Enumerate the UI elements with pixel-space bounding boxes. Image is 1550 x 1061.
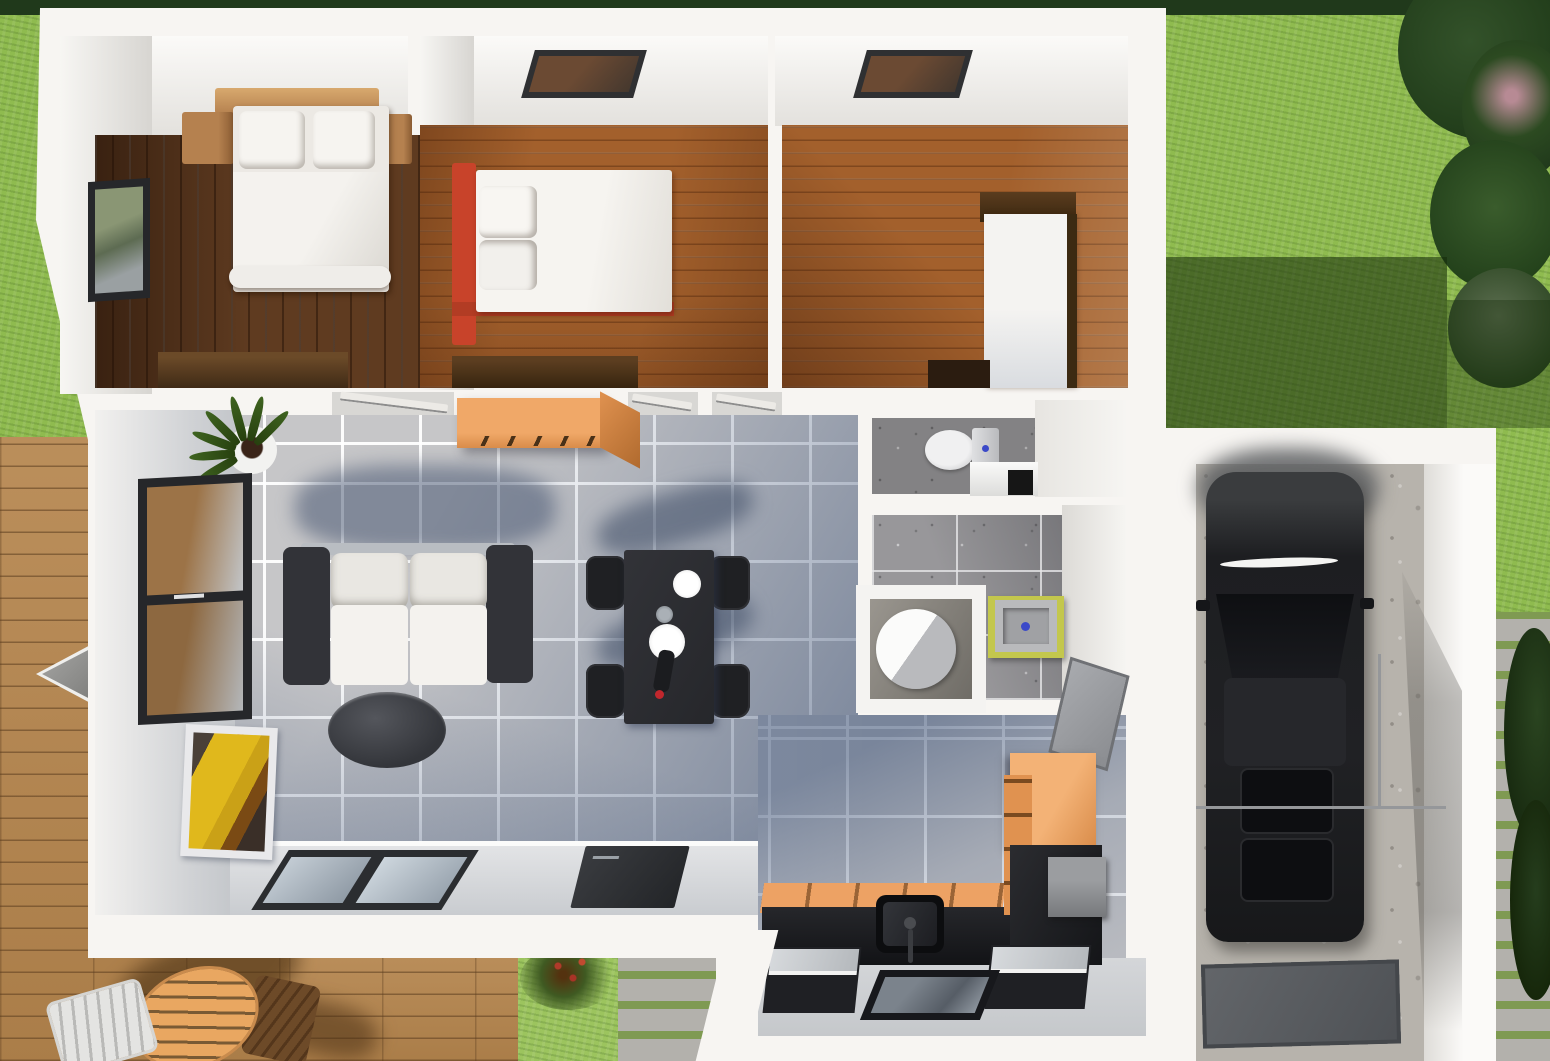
island-glass-top [990,947,1089,973]
bed-frame-red [452,163,476,345]
faucet-icon [904,917,916,929]
kitchen-cabinets [760,883,1006,913]
bed [476,170,672,312]
parasol-icon [42,648,92,700]
tall-cabinet [1010,753,1096,848]
kitchen-walkway [758,958,1146,1036]
car-front-blur [1198,448,1378,528]
faucet-icon [908,929,913,963]
duvet-roll [229,266,391,288]
room-living [95,410,858,915]
hatch-glass [871,977,990,1013]
washbasin-top [995,600,1057,652]
sofa-back-cushion [410,553,487,609]
wall-face [420,36,768,126]
tree-shadow [1447,300,1550,428]
sideboard-slats [463,436,597,446]
building-shadow [1166,257,1447,428]
pillow [313,111,375,169]
island-glass-top [769,949,860,975]
railing [1378,654,1381,808]
shower-round [876,609,956,689]
toilet [925,430,975,470]
dresser [158,352,348,388]
flower-dots [540,950,600,990]
shower-floor [870,599,972,699]
sink-basin [883,902,937,946]
pillow [239,111,305,169]
patio-chair-dark [240,974,321,1061]
tree-icon [1462,40,1550,180]
door-glass [263,857,372,903]
sideboard-side [600,391,640,468]
furniture-shadow [103,905,311,1054]
washbasin [988,596,1064,658]
door-glass [356,857,468,903]
wc-cabinet [970,462,1038,496]
wood-deck [289,950,518,1061]
island-unit [985,945,1092,1009]
sofa [283,543,533,685]
picture-frame [180,724,278,860]
door-leaf [340,391,448,413]
sofa-shadow [295,465,555,551]
door-leaf [632,393,693,411]
bedroom3-floor [782,125,1128,388]
island-unit [763,947,862,1013]
wall-shadow [1402,464,1462,1061]
bed [233,106,389,292]
garage-floor [1196,464,1424,1061]
floorplan-render [0,0,1550,1061]
room-kitchen [758,715,1146,1036]
car-roofline-highlight [1220,556,1338,569]
dresser [452,356,638,388]
door-handle-icon [592,856,619,859]
drain-icon [1021,622,1030,631]
kitchen-floor-shadow [758,715,1126,960]
patio-table [121,951,272,1061]
window [138,473,252,725]
wall-wedge [696,930,779,1061]
floor-shadow [235,415,858,845]
shrub-icon [1430,140,1550,290]
bed-frame-red [452,302,674,316]
railing [1196,806,1446,809]
hedge [0,0,1472,15]
bowl [656,606,673,623]
room-bedroom-2 [420,30,768,390]
sofa-seat-cushion [331,605,408,685]
car-rear-glass [1240,838,1334,902]
room-bedroom-3 [775,30,1128,390]
flush-button-icon [982,445,989,452]
wall-face [60,36,408,136]
bottle [652,649,675,693]
house-structure [36,8,1166,958]
door-leaf [716,393,777,411]
duvet [233,172,389,272]
patio-chair-white [48,981,156,1061]
wc-floor [872,418,1035,494]
parasol-icon [36,642,96,706]
kitchen-sink [876,895,944,953]
wood-deck [0,437,289,1061]
garage-structure [1162,428,1496,1061]
counter-return [1010,845,1102,965]
room-bathroom [872,515,1126,712]
sofa-backrail [301,543,515,555]
room-wc [872,400,1126,497]
bush-icon [1510,800,1550,1000]
headboard-shelf [215,88,379,114]
window-glass [147,600,243,715]
window [88,178,150,302]
car-mirror-icon [1196,600,1210,611]
chair-shadow [591,585,759,679]
room-garage [1162,428,1496,1061]
bathroom-floor [872,515,1062,700]
car [1206,472,1364,942]
flower-patch [518,950,618,1061]
car-roof [1224,678,1346,766]
cabinet-drawers [1004,775,1032,915]
bush-icon [1504,628,1550,838]
sofa-back-cushion [331,553,408,609]
wall-face [420,36,474,390]
washbasin-bowl [1003,608,1049,644]
wall-face [60,36,152,394]
coffee-table [328,692,446,768]
skylight-glass [861,56,965,92]
wall-face [95,410,237,915]
dining-chair [586,664,626,718]
kitchen-wing-structure [716,860,1166,1061]
nightstand [384,114,412,164]
grey-appliance [1048,857,1106,917]
wall-face [775,36,1128,126]
bed-rail [1067,214,1077,388]
living-floor [235,415,858,845]
bedroom2-floor [420,125,768,388]
entry-door [570,846,689,908]
sideboard [457,398,603,448]
pillow [479,186,537,238]
door-opening [628,392,698,416]
car-mirror-icon [1360,598,1374,609]
dining-chair [710,664,750,718]
bed-headboard [980,192,1076,222]
furniture-shadow [263,989,382,1061]
window-glass [147,482,243,595]
wall-face [1062,505,1126,705]
cobblestone-path [618,950,718,1061]
wall-face [1035,400,1126,497]
dining-table [624,550,714,724]
plate [673,570,701,598]
chair-shadow [591,471,759,565]
window-latch [174,594,204,600]
flowering-shrub-icon [520,946,616,1010]
sofa-armrest [283,547,330,685]
shrub-icon [1448,268,1550,388]
window-glass [95,186,143,293]
skylight [853,50,973,98]
car-rear-glass [1240,768,1334,834]
shower-alcove [856,585,986,713]
sofa-seat-cushion [410,605,487,685]
wall-face [1424,464,1496,1061]
dining-chair [586,556,626,610]
pillow [479,240,537,290]
sliding-glass-door [251,850,478,910]
picture-canvas [189,732,270,851]
plate [649,624,685,660]
step-edge [230,841,858,846]
wardrobe [775,93,825,283]
cobblestone-path [1496,612,1550,1061]
tree-icon [1398,0,1550,140]
door-opening [712,392,782,416]
kitchen-worktop [762,907,1014,965]
walkway-floor [230,845,858,915]
door-leaf-grey [1048,657,1129,772]
single-bed [984,214,1074,388]
sofa-armrest [486,545,533,683]
nightstand [182,112,234,164]
glass-hatch [860,970,1000,1020]
toilet-cistern [972,428,999,468]
bench [928,360,990,388]
car-windshield [1216,594,1354,680]
lawn [0,0,1550,1061]
bottle-cap [655,690,664,699]
door-opening [332,392,454,416]
bedroom1-floor [95,135,440,388]
skylight [521,50,647,98]
skylight-glass [529,56,639,92]
dining-chair [710,556,750,610]
wall-niche [1008,470,1033,495]
plant-pot [227,426,277,474]
kitchen-floor [758,715,1126,960]
garage-mat [1201,959,1401,1048]
room-bedroom-1 [60,30,408,390]
